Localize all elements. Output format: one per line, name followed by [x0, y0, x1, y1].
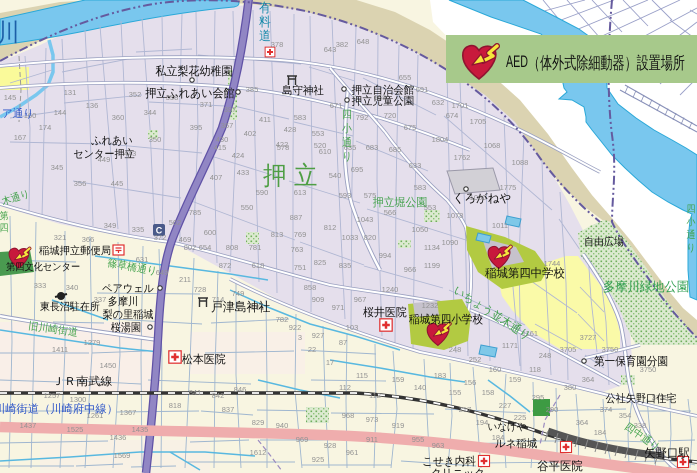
svg-text:728: 728: [194, 285, 207, 294]
svg-text:649: 649: [156, 268, 169, 277]
svg-text:967: 967: [354, 295, 367, 304]
svg-text:1705: 1705: [470, 117, 487, 126]
svg-text:338: 338: [634, 421, 647, 430]
svg-text:372: 372: [154, 233, 167, 242]
svg-text:449: 449: [98, 155, 111, 164]
svg-text:211: 211: [179, 275, 191, 284]
svg-text:818: 818: [169, 401, 182, 410]
svg-text:1525: 1525: [67, 425, 84, 434]
svg-text:3: 3: [298, 333, 302, 342]
svg-text:683: 683: [366, 143, 379, 152]
svg-text:858: 858: [304, 283, 317, 292]
svg-text:3705: 3705: [560, 345, 577, 354]
svg-text:781: 781: [249, 243, 262, 252]
svg-text:633: 633: [409, 161, 422, 170]
svg-text:364: 364: [576, 418, 589, 427]
svg-text:973: 973: [366, 415, 379, 424]
svg-text:785: 785: [189, 208, 202, 217]
svg-text:1300: 1300: [70, 395, 87, 404]
svg-text:925: 925: [312, 455, 325, 464]
svg-text:183: 183: [434, 371, 447, 380]
svg-text:763: 763: [291, 245, 304, 254]
svg-text:841: 841: [189, 388, 202, 397]
svg-text:385: 385: [246, 85, 259, 94]
svg-text:655: 655: [399, 73, 412, 82]
svg-text:295: 295: [532, 393, 545, 402]
svg-text:1775: 1775: [500, 183, 517, 192]
svg-text:1257: 1257: [44, 391, 61, 400]
svg-text:671: 671: [330, 101, 343, 110]
svg-text:356: 356: [74, 179, 87, 188]
svg-text:994: 994: [379, 251, 392, 260]
svg-text:345: 345: [51, 163, 64, 172]
svg-text:87: 87: [339, 338, 347, 347]
svg-text:825: 825: [314, 258, 327, 267]
svg-text:1171: 1171: [502, 341, 518, 350]
svg-text:371: 371: [200, 100, 213, 109]
svg-text:820: 820: [364, 233, 377, 242]
svg-text:3727: 3727: [580, 333, 597, 342]
svg-text:540: 540: [329, 171, 342, 180]
svg-text:1435: 1435: [132, 425, 149, 434]
svg-text:411: 411: [259, 115, 271, 124]
svg-text:887: 887: [290, 213, 303, 222]
svg-text:1450: 1450: [100, 361, 117, 370]
svg-text:155: 155: [449, 388, 462, 397]
svg-text:174: 174: [39, 123, 52, 132]
svg-text:367: 367: [221, 121, 234, 130]
svg-text:118: 118: [529, 365, 541, 374]
svg-text:928: 928: [324, 441, 337, 450]
svg-text:360: 360: [112, 113, 125, 122]
svg-text:792: 792: [356, 113, 369, 122]
svg-text:350: 350: [149, 135, 162, 144]
svg-text:3750: 3750: [602, 345, 619, 354]
svg-text:156: 156: [464, 378, 477, 387]
svg-text:963: 963: [432, 441, 445, 450]
svg-text:685: 685: [389, 145, 402, 154]
svg-text:1043: 1043: [357, 215, 374, 224]
svg-text:415: 415: [214, 143, 227, 152]
svg-text:1050: 1050: [412, 225, 429, 234]
svg-text:103: 103: [346, 323, 359, 332]
svg-text:714: 714: [212, 295, 225, 304]
svg-text:248: 248: [449, 345, 462, 354]
svg-text:349: 349: [104, 221, 117, 230]
svg-text:922: 922: [289, 323, 302, 332]
svg-text:837: 837: [222, 405, 235, 414]
svg-text:344: 344: [144, 108, 157, 117]
svg-text:1033: 1033: [342, 233, 359, 242]
svg-text:144: 144: [54, 108, 67, 117]
svg-text:227: 227: [499, 401, 512, 410]
svg-text:835: 835: [339, 261, 352, 270]
svg-text:112: 112: [339, 383, 351, 392]
svg-text:1437: 1437: [20, 421, 37, 430]
svg-text:17: 17: [326, 358, 334, 367]
svg-text:813: 813: [271, 230, 284, 239]
svg-text:1744: 1744: [544, 259, 561, 268]
svg-text:782: 782: [276, 315, 289, 324]
svg-text:378: 378: [271, 40, 284, 49]
svg-text:1090: 1090: [442, 238, 459, 247]
svg-text:402: 402: [244, 129, 257, 138]
svg-text:22: 22: [308, 345, 316, 354]
svg-text:1804: 1804: [432, 135, 449, 144]
svg-text:600: 600: [204, 228, 217, 237]
svg-text:1701: 1701: [452, 101, 469, 110]
svg-text:160: 160: [489, 365, 502, 374]
svg-text:812: 812: [324, 223, 337, 232]
svg-text:1367: 1367: [120, 408, 137, 417]
svg-text:380: 380: [564, 383, 577, 392]
svg-text:333: 333: [34, 281, 47, 290]
svg-text:1569: 1569: [114, 451, 131, 460]
svg-text:969: 969: [296, 435, 309, 444]
svg-text:520: 520: [314, 141, 327, 150]
svg-text:252: 252: [469, 355, 482, 364]
svg-text:364: 364: [582, 375, 595, 384]
svg-text:112: 112: [369, 391, 381, 400]
svg-text:613: 613: [294, 188, 307, 197]
svg-text:167: 167: [14, 133, 27, 142]
svg-text:654: 654: [199, 243, 212, 252]
svg-text:631: 631: [136, 255, 149, 264]
svg-text:751: 751: [294, 263, 307, 272]
svg-text:971: 971: [332, 303, 345, 312]
svg-text:1068: 1068: [484, 141, 501, 150]
svg-text:159: 159: [509, 375, 522, 384]
svg-text:290: 290: [546, 405, 559, 414]
svg-text:382: 382: [336, 40, 349, 49]
svg-text:194: 194: [476, 418, 489, 427]
svg-text:720: 720: [384, 111, 397, 120]
svg-text:966: 966: [404, 265, 417, 274]
svg-text:225: 225: [514, 413, 527, 422]
svg-text:184: 184: [594, 428, 607, 437]
svg-text:583: 583: [414, 183, 427, 192]
svg-text:1612: 1612: [250, 448, 267, 457]
svg-text:395: 395: [190, 123, 203, 132]
svg-text:445: 445: [111, 179, 124, 188]
svg-text:136: 136: [86, 101, 99, 110]
svg-text:968: 968: [342, 411, 355, 420]
svg-text:566: 566: [384, 208, 397, 217]
svg-text:749: 749: [232, 289, 245, 298]
svg-text:1134: 1134: [424, 243, 440, 252]
svg-text:550: 550: [241, 203, 254, 212]
svg-text:643: 643: [324, 45, 337, 54]
svg-text:1232: 1232: [422, 301, 439, 310]
svg-text:553: 553: [424, 203, 437, 212]
svg-text:1762: 1762: [454, 153, 471, 162]
svg-text:1436: 1436: [110, 433, 127, 442]
svg-text:691: 691: [416, 85, 429, 94]
svg-text:131: 131: [64, 88, 77, 97]
svg-text:1011: 1011: [492, 221, 508, 230]
svg-text:553: 553: [312, 129, 325, 138]
svg-text:217: 217: [459, 405, 472, 414]
svg-text:428: 428: [284, 125, 297, 134]
svg-text:352: 352: [129, 90, 142, 99]
svg-text:927: 927: [312, 331, 325, 340]
svg-text:575: 575: [364, 191, 377, 200]
svg-text:769: 769: [294, 230, 307, 239]
svg-text:675: 675: [404, 123, 417, 132]
svg-text:433: 433: [237, 168, 250, 177]
svg-text:562: 562: [169, 218, 182, 227]
svg-text:145: 145: [4, 93, 17, 102]
svg-text:340: 340: [66, 283, 79, 292]
svg-text:115: 115: [356, 371, 368, 380]
svg-text:618: 618: [252, 261, 265, 270]
svg-text:590: 590: [256, 188, 269, 197]
svg-text:366: 366: [82, 235, 95, 244]
svg-text:955: 955: [412, 435, 425, 444]
svg-text:829: 829: [252, 418, 265, 427]
svg-text:872: 872: [219, 261, 232, 270]
svg-text:469: 469: [179, 235, 192, 244]
svg-text:1088: 1088: [512, 158, 529, 167]
svg-text:961: 961: [346, 448, 359, 457]
svg-text:1199: 1199: [424, 261, 440, 270]
svg-text:1240: 1240: [382, 285, 399, 294]
svg-text:802: 802: [184, 243, 197, 252]
svg-text:919: 919: [392, 421, 405, 430]
svg-text:940: 940: [276, 421, 289, 430]
svg-text:808: 808: [226, 243, 239, 252]
svg-text:842: 842: [212, 391, 225, 400]
svg-text:909: 909: [312, 295, 325, 304]
svg-text:911: 911: [366, 435, 378, 444]
svg-text:846: 846: [234, 385, 247, 394]
svg-text:1078: 1078: [447, 211, 464, 220]
svg-text:321: 321: [54, 233, 67, 242]
svg-text:159: 159: [392, 375, 405, 384]
svg-text:424: 424: [232, 151, 245, 160]
svg-text:1411: 1411: [52, 345, 68, 354]
svg-text:674: 674: [446, 111, 459, 120]
svg-text:354: 354: [619, 411, 632, 420]
svg-text:140: 140: [414, 383, 427, 392]
svg-text:AED: AED: [506, 52, 528, 71]
svg-text:632: 632: [432, 98, 445, 107]
svg-text:593: 593: [339, 191, 352, 200]
svg-text:1279: 1279: [84, 338, 101, 347]
svg-text:158: 158: [482, 388, 495, 397]
svg-text:695: 695: [351, 165, 364, 174]
svg-text:648: 648: [357, 37, 370, 46]
svg-text:374: 374: [600, 405, 613, 414]
svg-text:397: 397: [224, 105, 237, 114]
svg-text:335: 335: [132, 225, 145, 234]
svg-text:583: 583: [294, 113, 307, 122]
svg-text:578: 578: [277, 143, 290, 152]
svg-text:248: 248: [539, 351, 552, 360]
svg-text:407: 407: [210, 173, 223, 182]
